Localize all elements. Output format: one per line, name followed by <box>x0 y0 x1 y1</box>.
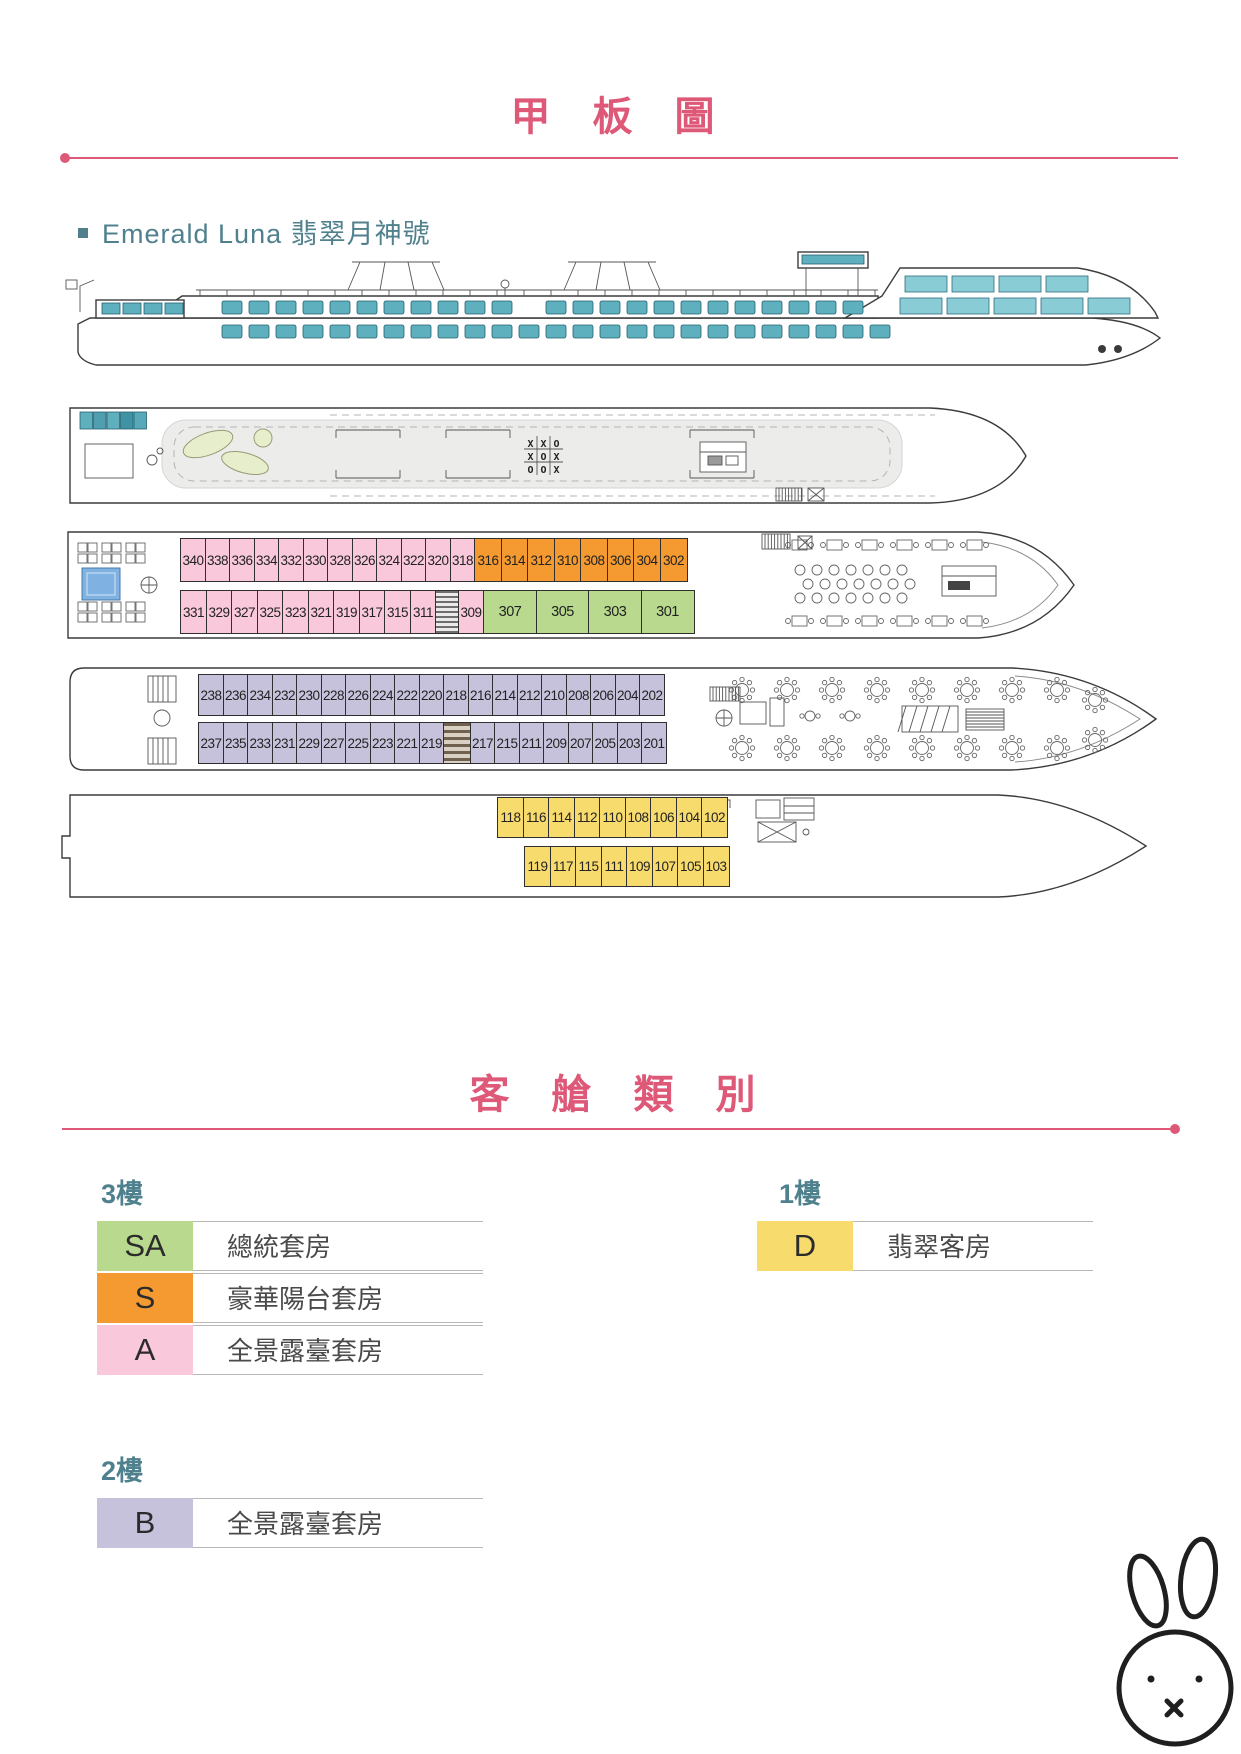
cabin-222: 222 <box>394 674 420 716</box>
cabin-314: 314 <box>501 538 529 582</box>
cabin-216: 216 <box>468 674 494 716</box>
cabin-108: 108 <box>625 797 652 838</box>
cabin-328: 328 <box>327 538 353 582</box>
cabin-221: 221 <box>394 722 420 764</box>
cabin-332: 332 <box>278 538 304 582</box>
cabin-112: 112 <box>574 797 601 838</box>
cabin-306: 306 <box>607 538 635 582</box>
cabin-118: 118 <box>497 797 524 838</box>
deck2-cabin-row-top: 2382362342322302282262242222202182162142… <box>198 674 665 716</box>
deck3-cabin-row-top: 3403383363343323303283263243223203183163… <box>180 538 688 582</box>
cabin-325: 325 <box>257 590 284 634</box>
svg-text:X: X <box>553 465 559 476</box>
deck1-cabin-row-top: 118116114112110108106104102 <box>497 797 728 838</box>
legend-name-B: 全景露臺套房 <box>193 1498 483 1548</box>
cabin-115: 115 <box>575 846 602 887</box>
cabin-106: 106 <box>650 797 677 838</box>
divider-dot <box>1170 1124 1180 1134</box>
cabin-234: 234 <box>247 674 273 716</box>
legend-row-B: B全景露臺套房 <box>97 1498 483 1548</box>
cabin-235: 235 <box>223 722 249 764</box>
cabin-114: 114 <box>548 797 575 838</box>
legend-floor-2: 2樓 B全景露臺套房 <box>97 1449 483 1550</box>
cabin-304: 304 <box>633 538 661 582</box>
cabin-205: 205 <box>592 722 618 764</box>
cabin-229: 229 <box>296 722 322 764</box>
svg-text:O: O <box>540 452 546 463</box>
cabin-321: 321 <box>308 590 335 634</box>
cabin-329: 329 <box>206 590 233 634</box>
cabin-316: 316 <box>474 538 502 582</box>
cabin-327: 327 <box>231 590 258 634</box>
cabin-116: 116 <box>523 797 550 838</box>
title-divider <box>62 157 1178 159</box>
cabin-301: 301 <box>641 590 695 634</box>
legend-name-D: 翡翠客房 <box>853 1221 1093 1271</box>
cabin-217: 217 <box>470 722 496 764</box>
svg-text:X: X <box>540 439 546 450</box>
svg-text:X: X <box>553 452 559 463</box>
legend-row-SA: SA總統套房 <box>97 1221 483 1271</box>
cabin-203: 203 <box>617 722 643 764</box>
ship-name-row: Emerald Luna 翡翠月神號 <box>78 212 431 251</box>
cabin-105: 105 <box>677 846 704 887</box>
cabin-315: 315 <box>384 590 411 634</box>
cabin-110: 110 <box>599 797 626 838</box>
svg-text:O: O <box>540 465 546 476</box>
deck3-cabin-row-bottom: 3313293273253233213193173153113093073053… <box>180 590 695 634</box>
cabin-202: 202 <box>639 674 665 716</box>
cabin-212: 212 <box>517 674 543 716</box>
cabin-312: 312 <box>527 538 555 582</box>
cabin-107: 107 <box>652 846 679 887</box>
legend-swatch-SA: SA <box>97 1221 193 1271</box>
cabin-326: 326 <box>352 538 378 582</box>
floor-label-2f: 2樓 <box>101 1449 483 1488</box>
cabin-210: 210 <box>541 674 567 716</box>
cabin-228: 228 <box>321 674 347 716</box>
cabin-224: 224 <box>370 674 396 716</box>
cabin-207: 207 <box>568 722 594 764</box>
cabin-211: 211 <box>519 722 545 764</box>
legend-name-A: 全景露臺套房 <box>193 1325 483 1375</box>
deck2-cabin-row-bottom: 2372352332312292272252232212192172152112… <box>198 722 667 764</box>
svg-text:X: X <box>527 452 533 463</box>
cabin-311: 311 <box>410 590 437 634</box>
legend-row-S: S豪華陽台套房 <box>97 1273 483 1323</box>
stairs-cell <box>435 590 459 634</box>
legend-swatch-A: A <box>97 1325 193 1375</box>
cabin-111: 111 <box>601 846 628 887</box>
cabin-231: 231 <box>272 722 298 764</box>
cabin-109: 109 <box>626 846 653 887</box>
cabin-317: 317 <box>359 590 386 634</box>
cabin-330: 330 <box>303 538 329 582</box>
cabin-117: 117 <box>550 846 577 887</box>
cabin-237: 237 <box>198 722 224 764</box>
cabin-219: 219 <box>419 722 445 764</box>
cabin-220: 220 <box>419 674 445 716</box>
cabin-324: 324 <box>376 538 402 582</box>
svg-text:O: O <box>553 439 559 450</box>
cabin-214: 214 <box>492 674 518 716</box>
legend-name-S: 豪華陽台套房 <box>193 1273 483 1323</box>
svg-text:O: O <box>527 465 533 476</box>
cabin-104: 104 <box>676 797 703 838</box>
cabin-336: 336 <box>229 538 255 582</box>
cabin-232: 232 <box>272 674 298 716</box>
cabin-233: 233 <box>247 722 273 764</box>
cabin-201: 201 <box>641 722 667 764</box>
cabin-204: 204 <box>615 674 641 716</box>
cabin-236: 236 <box>223 674 249 716</box>
cabin-307: 307 <box>483 590 537 634</box>
cabin-230: 230 <box>296 674 322 716</box>
cabin-320: 320 <box>425 538 451 582</box>
square-bullet-icon <box>78 228 88 238</box>
cabin-331: 331 <box>180 590 207 634</box>
cabin-322: 322 <box>401 538 427 582</box>
cabin-308: 308 <box>580 538 608 582</box>
floor-label-1f: 1樓 <box>779 1172 1093 1211</box>
cabin-103: 103 <box>703 846 730 887</box>
cabin-305: 305 <box>536 590 590 634</box>
cabin-238: 238 <box>198 674 224 716</box>
legend-swatch-D: D <box>757 1221 853 1271</box>
cabin-119: 119 <box>524 846 551 887</box>
cabin-319: 319 <box>333 590 360 634</box>
cabin-226: 226 <box>345 674 371 716</box>
legend-swatch-S: S <box>97 1273 193 1323</box>
svg-text:X: X <box>527 439 533 450</box>
legend-divider <box>62 1128 1178 1130</box>
legend-floor-1: 1樓 D翡翠客房 <box>757 1172 1093 1273</box>
legend-row-D: D翡翠客房 <box>757 1221 1093 1271</box>
cabin-309: 309 <box>458 590 485 634</box>
cabin-225: 225 <box>345 722 371 764</box>
bunny-illustration <box>1103 1536 1241 1754</box>
cabin-215: 215 <box>494 722 520 764</box>
deck-plan-page: XXOXOXOOX <box>0 0 1241 1754</box>
ship-side-profile <box>66 252 1160 365</box>
cabin-227: 227 <box>321 722 347 764</box>
cabin-102: 102 <box>701 797 728 838</box>
legend-swatch-B: B <box>97 1498 193 1548</box>
cabin-323: 323 <box>282 590 309 634</box>
legend-floor-3: 3樓 SA總統套房S豪華陽台套房A全景露臺套房 <box>97 1172 483 1377</box>
sun-deck-plan: XXOXOXOOX <box>70 408 1026 503</box>
cabin-208: 208 <box>566 674 592 716</box>
cabin-206: 206 <box>590 674 616 716</box>
cabin-303: 303 <box>588 590 642 634</box>
cabin-209: 209 <box>543 722 569 764</box>
cabin-310: 310 <box>554 538 582 582</box>
cabin-223: 223 <box>370 722 396 764</box>
stairs-cell <box>443 722 471 764</box>
legend-name-SA: 總統套房 <box>193 1221 483 1271</box>
divider-dot <box>60 153 70 163</box>
floor-label-3f: 3樓 <box>101 1172 483 1211</box>
cabin-338: 338 <box>205 538 231 582</box>
cabin-318: 318 <box>450 538 476 582</box>
deck1-cabin-row-bottom: 119117115111109107105103 <box>524 846 730 887</box>
cabin-302: 302 <box>660 538 688 582</box>
legend-row-A: A全景露臺套房 <box>97 1325 483 1375</box>
cabin-334: 334 <box>254 538 280 582</box>
page-title: 甲 板 圖 <box>0 84 1241 142</box>
cabin-340: 340 <box>180 538 206 582</box>
cabin-218: 218 <box>443 674 469 716</box>
cabin-legend-title: 客 艙 類 別 <box>0 1062 1241 1120</box>
ship-name: Emerald Luna 翡翠月神號 <box>102 212 431 251</box>
